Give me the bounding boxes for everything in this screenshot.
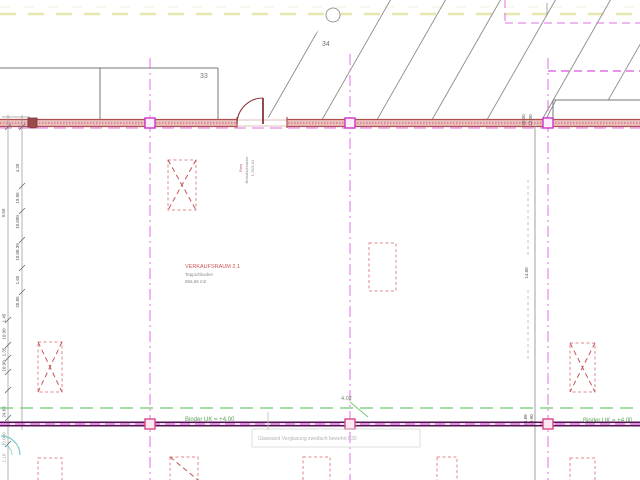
room-33-label: 33 bbox=[200, 73, 208, 80]
dim-left: 9.000 bbox=[2, 432, 7, 444]
facade-note: Glaswand Verglasung zweifach bewehrt F30 bbox=[258, 436, 357, 442]
dim-left: 10.690 bbox=[15, 215, 20, 229]
column-cross bbox=[38, 160, 595, 480]
binder-label-right: Binder UK = +4.00 bbox=[583, 418, 633, 424]
dim-left: 1.65 bbox=[15, 275, 20, 284]
door-note-3: 1,76/2,01 bbox=[250, 159, 255, 176]
door-note-2: Brandschutztor bbox=[244, 156, 249, 184]
upper-rooms bbox=[0, 68, 218, 120]
dim-left: 10.90 bbox=[2, 360, 7, 372]
wall-end-node bbox=[28, 118, 37, 128]
dim-right: 14.60 bbox=[524, 267, 529, 279]
dim-left: 1.35 bbox=[2, 347, 7, 356]
roof-edge-lines bbox=[546, 100, 640, 119]
leader-line bbox=[350, 402, 368, 417]
grid-bubble bbox=[326, 8, 340, 22]
door-note-1: Rwa bbox=[238, 163, 243, 172]
dim-right: 12.00 bbox=[528, 114, 533, 126]
column bbox=[38, 160, 595, 480]
facade-lines: Binder UK = +4.00 Binder UK = +4.00 4.02… bbox=[0, 396, 640, 447]
cad-canvas[interactable]: 33 34 bbox=[0, 0, 640, 480]
grid-node bbox=[145, 118, 155, 128]
dim-left-total: 9.50 bbox=[1, 208, 6, 217]
dim-left: 1.45 bbox=[2, 313, 7, 322]
dim-left: 26.85 bbox=[15, 296, 20, 308]
dim-left: 10.08.39 bbox=[15, 243, 20, 261]
dim-left: 4.26 bbox=[15, 163, 20, 172]
dim-right: 40.00 bbox=[521, 114, 526, 126]
grid-node bbox=[345, 118, 355, 128]
door-opening bbox=[237, 118, 287, 129]
dim-left: 19.06 bbox=[15, 192, 20, 204]
door-annotation: Rwa Brandschutztor 1,76/2,01 bbox=[238, 156, 255, 184]
grid-node bbox=[543, 118, 553, 128]
room-area: 865,56 m2 bbox=[185, 279, 207, 284]
room-34-label: 34 bbox=[322, 41, 330, 48]
room-title: VERKAUFSRAUM 2.1 bbox=[185, 264, 240, 270]
dim-left: 1.10 bbox=[2, 453, 7, 462]
columns bbox=[38, 160, 595, 480]
hatch-region bbox=[260, 0, 640, 132]
room-floor: Teppichboden bbox=[185, 272, 214, 277]
facade-dim-label: 4.02 bbox=[341, 396, 352, 402]
room-label-block: VERKAUFSRAUM 2.1 Teppichboden 865,56 m2 bbox=[185, 264, 240, 284]
binder-label-left: Binder UK = +4.00 bbox=[185, 417, 235, 423]
dim-left: 10.90 bbox=[2, 328, 7, 340]
